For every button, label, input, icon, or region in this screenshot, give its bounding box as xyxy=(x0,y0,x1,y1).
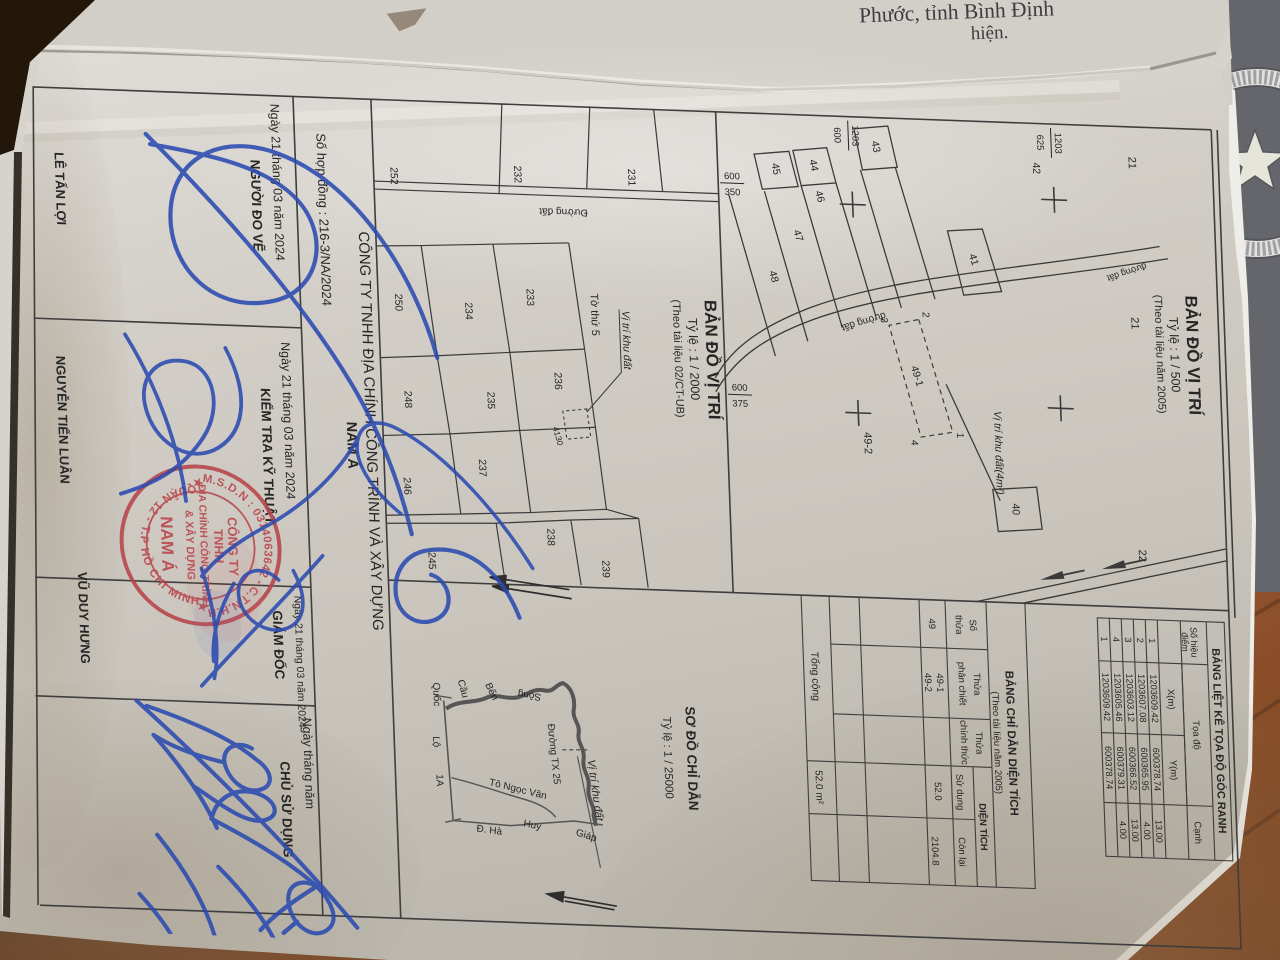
svg-text:1203603.12: 1203603.12 xyxy=(1124,673,1136,722)
svg-text:44: 44 xyxy=(806,159,819,172)
svg-text:4: 4 xyxy=(1111,637,1121,642)
svg-text:4.00: 4.00 xyxy=(1142,822,1153,840)
svg-text:237: 237 xyxy=(476,459,488,477)
svg-text:600365.95: 600365.95 xyxy=(1139,747,1151,791)
svg-text:1203609.42: 1203609.42 xyxy=(1100,672,1112,721)
svg-text:điểm: điểm xyxy=(1180,632,1191,652)
svg-text:236: 236 xyxy=(551,372,563,390)
svg-text:BẢNG CHỈ DẪN DIỆN TÍCH: BẢNG CHỈ DẪN DIỆN TÍCH xyxy=(1002,670,1020,816)
svg-text:248: 248 xyxy=(401,391,413,409)
svg-text:43: 43 xyxy=(868,140,881,153)
svg-text:1: 1 xyxy=(1099,636,1109,641)
svg-text:246: 246 xyxy=(401,477,413,495)
svg-text:250: 250 xyxy=(392,294,404,312)
svg-text:Số: Số xyxy=(967,619,978,632)
svg-text:600378.74: 600378.74 xyxy=(1103,746,1115,790)
svg-text:52.0: 52.0 xyxy=(932,782,944,801)
svg-text:X(m): X(m) xyxy=(1165,689,1177,710)
svg-text:47: 47 xyxy=(791,229,805,243)
svg-text:chính thức: chính thức xyxy=(957,720,970,765)
svg-text:4: 4 xyxy=(908,440,919,446)
svg-text:Đ. Hà: Đ. Hà xyxy=(476,823,503,838)
svg-text:Tỷ lệ : 1 / 500: Tỷ lệ : 1 / 500 xyxy=(1166,317,1183,393)
svg-text:Lộ: Lộ xyxy=(430,736,441,748)
svg-text:49-2: 49-2 xyxy=(861,432,874,454)
svg-text:đường đất: đường đất xyxy=(840,309,888,333)
svg-text:1203605.46: 1203605.46 xyxy=(1112,673,1124,722)
svg-text:2104.8: 2104.8 xyxy=(929,836,941,865)
svg-text:49-1: 49-1 xyxy=(908,365,925,388)
svg-text:BẢN ĐỒ VỊ TRÍ: BẢN ĐỒ VỊ TRÍ xyxy=(701,300,724,422)
svg-text:4.00: 4.00 xyxy=(1118,821,1129,839)
svg-text:52.0 m²: 52.0 m² xyxy=(812,770,824,805)
svg-text:(Theo tài liệu năm 2005): (Theo tài liệu năm 2005) xyxy=(989,691,1004,794)
svg-text:231: 231 xyxy=(625,169,637,187)
svg-text:21: 21 xyxy=(1128,317,1140,330)
svg-text:625: 625 xyxy=(1034,134,1046,150)
svg-text:1203607.08: 1203607.08 xyxy=(1136,674,1148,723)
svg-text:Tọa độ: Tọa độ xyxy=(1190,720,1202,750)
svg-text:600: 600 xyxy=(732,382,748,394)
svg-text:phân chiết: phân chiết xyxy=(955,662,968,706)
svg-text:600: 600 xyxy=(724,171,740,183)
svg-text:1: 1 xyxy=(1147,638,1157,643)
svg-text:Tô Ngọc Vân: Tô Ngọc Vân xyxy=(488,777,547,802)
svg-text:49-2: 49-2 xyxy=(922,673,934,692)
svg-text:252: 252 xyxy=(387,167,399,185)
svg-text:600379.31: 600379.31 xyxy=(1115,746,1127,790)
svg-text:350: 350 xyxy=(724,187,740,199)
svg-text:48: 48 xyxy=(766,270,780,284)
svg-text:235: 235 xyxy=(484,392,496,410)
svg-text:LÊ TẤN LỢI: LÊ TẤN LỢI xyxy=(52,152,70,225)
svg-text:238: 238 xyxy=(544,528,556,546)
svg-text:Tỷ lệ : 1 / 2000: Tỷ lệ : 1 / 2000 xyxy=(685,318,702,401)
svg-text:(Theo tài liệu năm 2005): (Theo tài liệu năm 2005) xyxy=(1151,295,1167,414)
svg-text:41: 41 xyxy=(966,253,980,267)
svg-text:DIỆN TÍCH: DIỆN TÍCH xyxy=(976,803,990,851)
svg-text:Cạnh: Cạnh xyxy=(1191,821,1203,844)
svg-text:Giáp: Giáp xyxy=(575,827,599,844)
svg-text:375: 375 xyxy=(732,398,748,410)
svg-text:Thửa: Thửa xyxy=(973,732,985,756)
svg-text:600: 600 xyxy=(831,127,843,143)
svg-text:Ngày 21 tháng 03 năm 2024: Ngày 21 tháng 03 năm 2024 xyxy=(278,342,298,500)
svg-text:Còn lại: Còn lại xyxy=(956,837,968,867)
svg-text:NAM Á: NAM Á xyxy=(157,516,178,572)
svg-text:KIỂM TRA KỸ THUẬT: KIỂM TRA KỸ THUẬT xyxy=(258,388,278,526)
svg-text:1: 1 xyxy=(954,433,965,439)
svg-text:234: 234 xyxy=(462,302,474,320)
svg-text:(Theo tài liệu 02/CT-UB): (Theo tài liệu 02/CT-UB) xyxy=(670,299,686,418)
svg-text:2: 2 xyxy=(1135,638,1145,643)
svg-text:GIÁM ĐỐC: GIÁM ĐỐC xyxy=(270,610,288,680)
svg-text:46: 46 xyxy=(812,190,826,204)
svg-text:1A: 1A xyxy=(433,774,444,787)
svg-text:Quốc: Quốc xyxy=(430,682,443,706)
svg-text:Sử dụng: Sử dụng xyxy=(953,774,965,811)
svg-text:13.00: 13.00 xyxy=(1154,820,1165,843)
svg-text:VŨ DUY HƯNG: VŨ DUY HƯNG xyxy=(75,572,93,664)
svg-text:Tờ thứ 5: Tờ thứ 5 xyxy=(588,293,602,336)
svg-text:Ngày tháng năm: Ngày tháng năm xyxy=(300,717,317,809)
svg-text:Thửa: Thửa xyxy=(971,673,983,697)
svg-text:thửa: thửa xyxy=(952,615,964,636)
svg-text:232: 232 xyxy=(511,165,523,183)
svg-text:1203: 1203 xyxy=(1052,132,1064,153)
svg-text:600366.52: 600366.52 xyxy=(1127,747,1139,791)
svg-text:Đường đất: Đường đất xyxy=(539,205,588,219)
svg-text:Số hiệu: Số hiệu xyxy=(1188,627,1199,658)
svg-text:Đường TX 25: Đường TX 25 xyxy=(545,723,562,785)
svg-text:600378.74: 600378.74 xyxy=(1151,748,1163,792)
svg-text:233: 233 xyxy=(523,288,535,306)
svg-text:3: 3 xyxy=(1123,637,1133,642)
svg-text:239: 239 xyxy=(599,560,611,578)
svg-text:49: 49 xyxy=(926,618,937,629)
svg-text:49-1: 49-1 xyxy=(934,673,946,692)
svg-text:Tổng cộng: Tổng cộng xyxy=(808,651,822,701)
svg-text:45: 45 xyxy=(769,163,782,176)
svg-text:Vị trí khu đất(4m²): Vị trí khu đất(4m²) xyxy=(991,411,1006,495)
svg-text:245: 245 xyxy=(425,552,437,570)
svg-text:21: 21 xyxy=(1125,156,1137,169)
svg-text:NGUYỄN TIẾN LUÂN: NGUYỄN TIẾN LUÂN xyxy=(53,356,73,485)
svg-text:BẢN ĐỒ VỊ TRÍ: BẢN ĐỒ VỊ TRÍ xyxy=(1181,295,1204,417)
svg-text:Cầu: Cầu xyxy=(455,679,472,699)
svg-text:13.00: 13.00 xyxy=(1130,819,1141,842)
svg-text:42: 42 xyxy=(1030,162,1041,174)
svg-text:40: 40 xyxy=(1009,503,1020,515)
svg-text:2: 2 xyxy=(919,312,930,318)
svg-text:1203609.42: 1203609.42 xyxy=(1148,674,1160,723)
svg-text:Số hợp đồng : 216-3/NA/2024: Số hợp đồng : 216-3/NA/2024 xyxy=(313,133,334,306)
svg-text:Tỷ lệ : 1 / 25000: Tỷ lệ : 1 / 25000 xyxy=(660,716,675,799)
svg-text:SƠ ĐỒ CHỈ DẪN: SƠ ĐỒ CHỈ DẪN xyxy=(682,706,701,811)
svg-text:Huy: Huy xyxy=(523,818,542,832)
svg-text:Y(m): Y(m) xyxy=(1167,760,1179,781)
